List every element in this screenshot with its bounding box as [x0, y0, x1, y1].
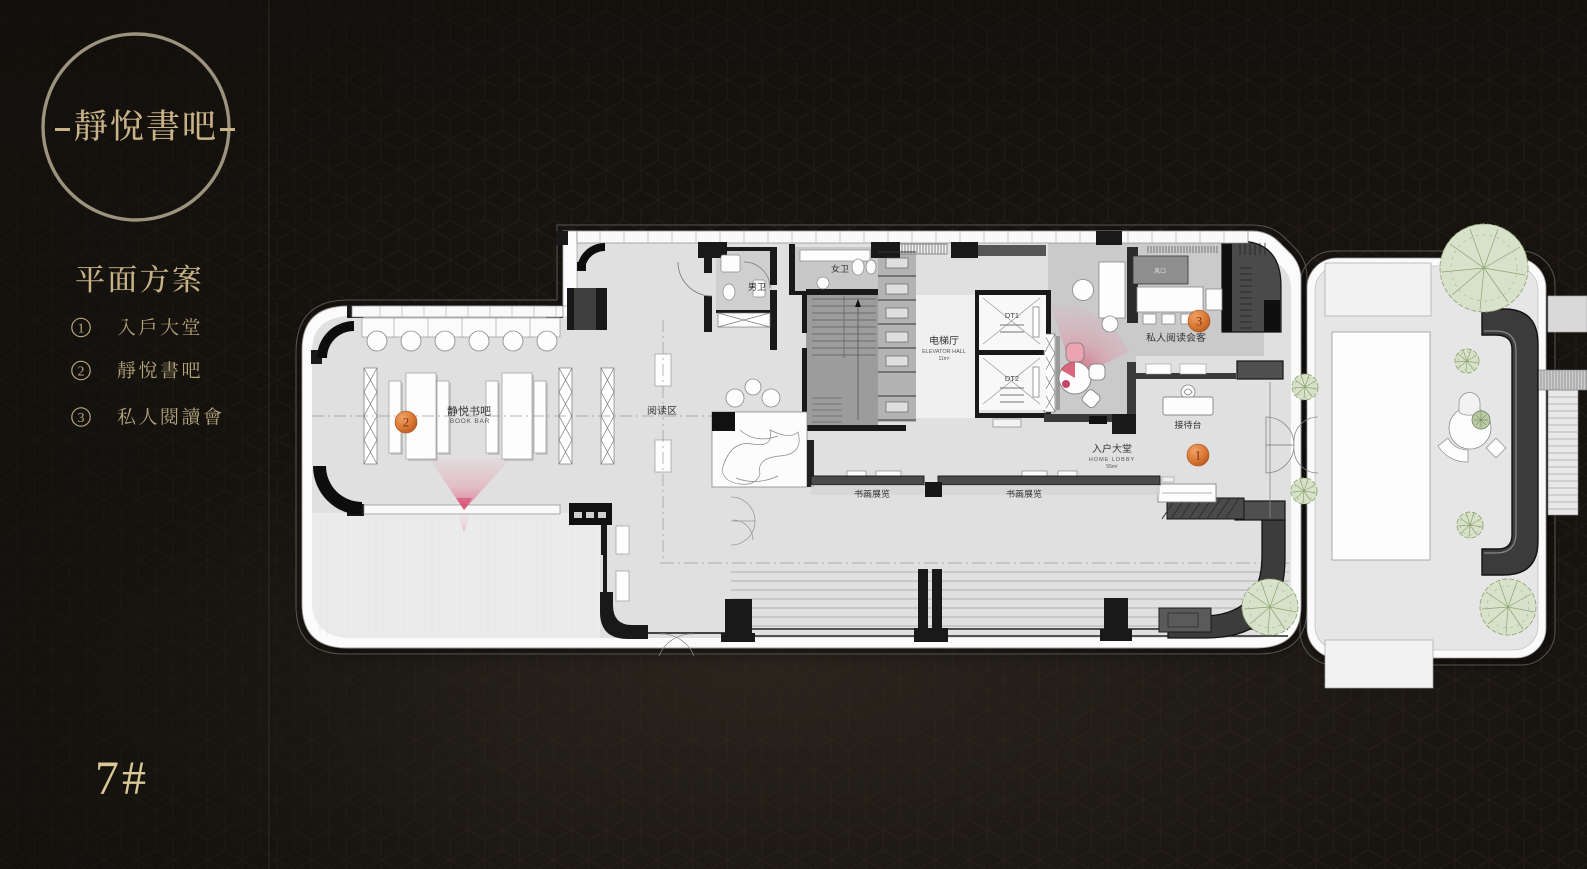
svg-text:DT2: DT2 — [1005, 374, 1019, 383]
svg-text:1: 1 — [78, 322, 85, 337]
svg-text:2: 2 — [403, 415, 410, 430]
svg-text:2: 2 — [78, 365, 85, 380]
svg-text:55m²: 55m² — [1106, 464, 1118, 470]
svg-text:11m²: 11m² — [938, 356, 949, 362]
svg-text:1: 1 — [1195, 448, 1202, 463]
svg-text:3: 3 — [78, 411, 85, 426]
svg-text:DT1: DT1 — [1005, 311, 1019, 320]
svg-text:ELEVATOR HALL: ELEVATOR HALL — [922, 349, 966, 355]
svg-text:HOME LOBBY: HOME LOBBY — [1089, 457, 1135, 463]
svg-text:3: 3 — [1196, 314, 1203, 329]
svg-text:BOOK BAR: BOOK BAR — [450, 418, 490, 425]
svg-text:7#: 7# — [95, 752, 149, 805]
